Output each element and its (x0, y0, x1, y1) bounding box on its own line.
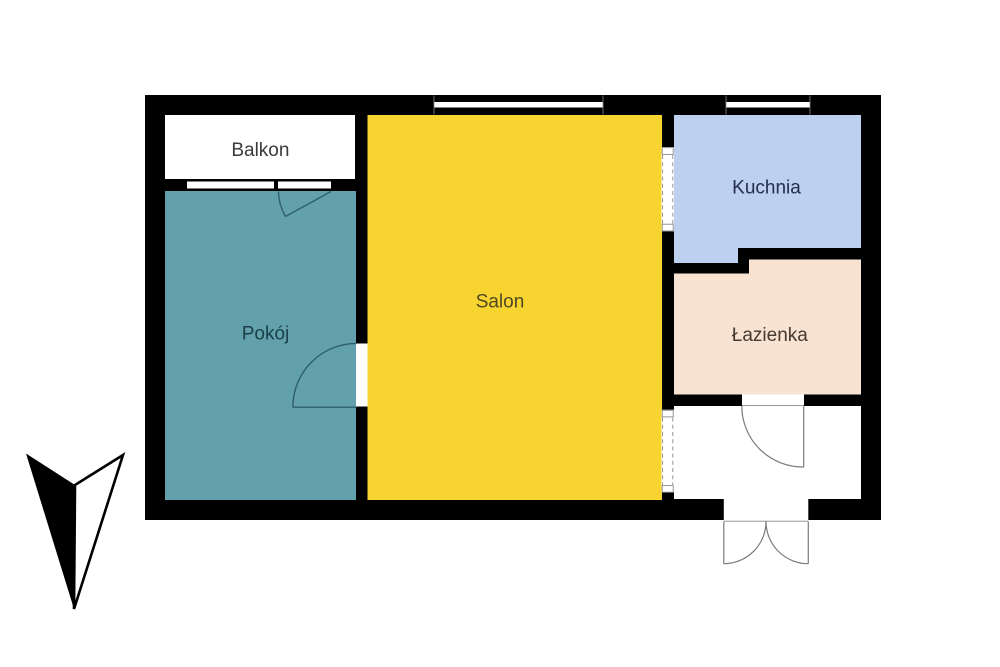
svg-text:Łazienka: Łazienka (732, 325, 808, 346)
svg-text:Pokój: Pokój (242, 324, 290, 345)
svg-text:Salon: Salon (476, 292, 525, 313)
svg-text:Kuchnia: Kuchnia (732, 177, 801, 198)
svg-text:Balkon: Balkon (231, 140, 289, 161)
